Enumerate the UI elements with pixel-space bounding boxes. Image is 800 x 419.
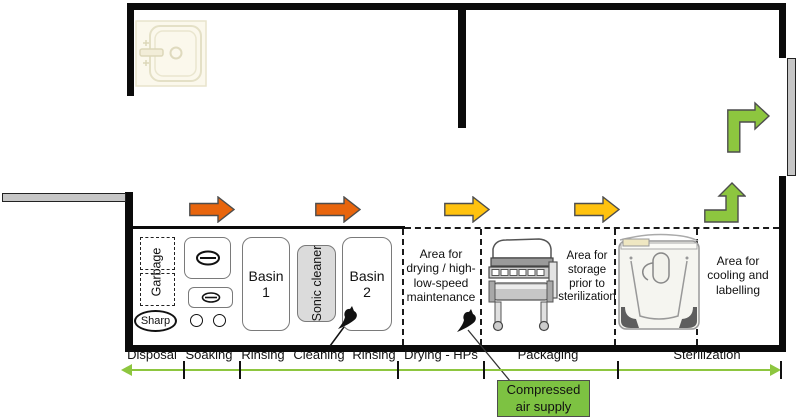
flow-arrow-elbow-up-green (704, 182, 746, 223)
compressed-air-supply-box: Compressed air supply (497, 380, 590, 417)
flow-arrow-elbow-right-green (727, 100, 771, 153)
flow-arrow-right-orange (315, 196, 361, 223)
flow-arrow-right-yellow (574, 196, 620, 223)
stage-tick (483, 361, 485, 379)
sterilization-room-floorplan: Garbage Sharp Basin 1 Sonic cleaner Basi… (0, 0, 800, 419)
stage-tick (780, 361, 782, 379)
stage-tick (183, 361, 185, 379)
compressed-air-supply-label: Compressed air supply (507, 382, 581, 415)
stage-tick (239, 361, 241, 379)
compressed-air-gun-icon (455, 309, 479, 333)
flow-arrow-right-yellow (444, 196, 490, 223)
flow-arrow-right-orange (189, 196, 235, 223)
compressed-air-gun-icon (336, 306, 360, 330)
stage-extent-line (118, 360, 786, 380)
stage-tick (397, 361, 399, 379)
stage-tick (617, 361, 619, 379)
